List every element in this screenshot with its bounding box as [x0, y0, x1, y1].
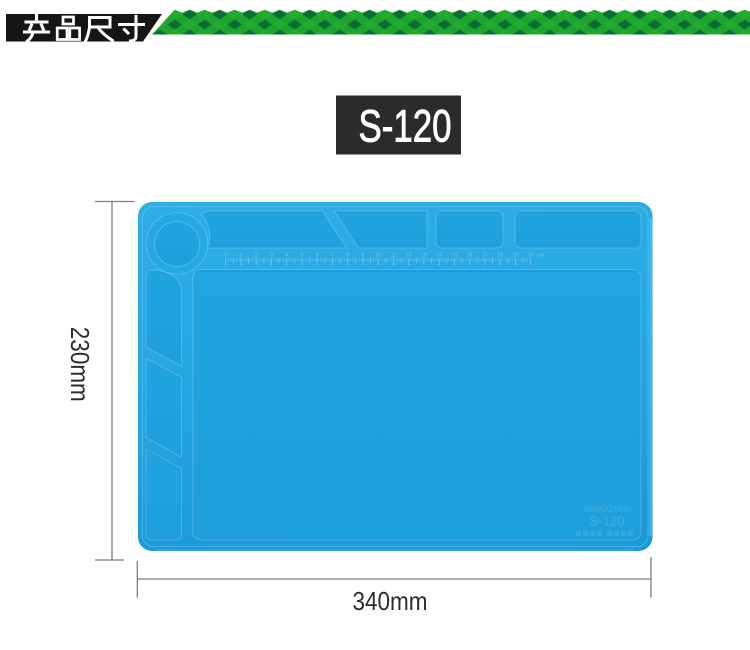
svg-text:17: 17	[482, 252, 488, 258]
svg-text:3: 3	[270, 252, 273, 258]
svg-text:6: 6	[316, 252, 319, 258]
svg-text:19: 19	[513, 252, 519, 258]
svg-text:20: 20	[528, 252, 534, 258]
svg-text:18: 18	[497, 252, 503, 258]
svg-text:S-120: S-120	[590, 514, 625, 529]
svg-text:1: 1	[239, 252, 242, 258]
svg-text:2: 2	[255, 252, 258, 258]
svg-text:cm: cm	[537, 252, 544, 258]
svg-text:16: 16	[467, 252, 473, 258]
svg-text:9: 9	[361, 252, 364, 258]
svg-text:15: 15	[452, 252, 458, 258]
svg-text:340mm: 340mm	[353, 586, 428, 616]
svg-text:5: 5	[300, 252, 303, 258]
svg-text:4: 4	[285, 252, 288, 258]
svg-text:11: 11	[391, 252, 396, 258]
svg-text:230mm: 230mm	[65, 327, 95, 402]
svg-text:S-120: S-120	[359, 101, 452, 152]
svg-text:12: 12	[406, 252, 412, 258]
svg-text:14: 14	[436, 252, 442, 258]
svg-text:340mmX230mm: 340mmX230mm	[583, 504, 631, 514]
svg-text:7: 7	[331, 252, 334, 258]
svg-text:8: 8	[346, 252, 349, 258]
svg-text:10: 10	[375, 252, 381, 258]
svg-text:0: 0	[224, 252, 227, 258]
svg-text:13: 13	[421, 252, 427, 258]
